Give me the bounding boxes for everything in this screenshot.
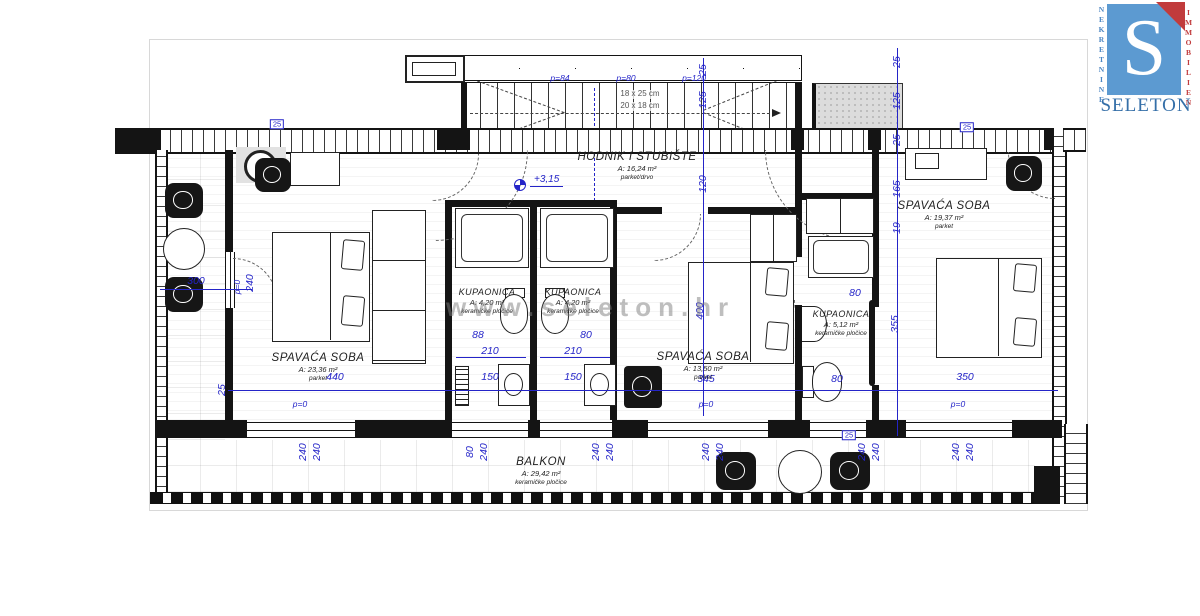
pillow <box>765 321 789 351</box>
door-leaf <box>869 300 875 386</box>
dimension-line <box>456 357 526 358</box>
cabinet <box>806 198 874 234</box>
room-floor: keramičke pločice <box>515 479 567 487</box>
stairs-walk-line <box>470 113 775 114</box>
room-label-bedroom-middle: SPAVAĆA SOBA A: 13,50 m² parket <box>657 350 750 382</box>
wall-bottom-pier <box>355 420 452 438</box>
desk-item <box>915 153 939 169</box>
logo-square: S <box>1107 4 1181 95</box>
seleton-logo: NEKRETNINE S IMMOBILIEN SELETON <box>1090 0 1200 130</box>
wall-bottom-pier <box>612 420 648 438</box>
balcony-door <box>648 422 768 438</box>
wall-right-stub-bottom <box>1064 424 1088 504</box>
room-label-balkon: BALKON A: 29,42 m² keramičke pločice <box>515 455 567 487</box>
balcony-door <box>247 422 355 438</box>
balcony-railing <box>150 492 1040 504</box>
room-floor: parket <box>657 374 750 382</box>
room-name: SPAVAĆA SOBA <box>898 199 991 213</box>
shower-tray <box>461 214 523 262</box>
washing-machine-icon <box>498 364 530 406</box>
bed-blanket-line <box>272 232 331 340</box>
dimension-line <box>228 390 1058 391</box>
watermark-text: www.seleton.hr <box>446 292 735 323</box>
room-name: HODNIK I STUBIŠTE <box>577 150 696 164</box>
railing-corner <box>1034 466 1060 504</box>
armchair-icon <box>830 452 870 490</box>
shower-tray <box>546 214 608 262</box>
room-name: SPAVAĆA SOBA <box>657 350 750 364</box>
pillow <box>1013 317 1037 347</box>
wall-stair-side <box>461 82 467 148</box>
bathroom-window <box>452 422 528 438</box>
room-area: A: 13,50 m² <box>657 364 750 373</box>
room-floor: parket <box>272 375 365 383</box>
bathroom-window <box>540 422 612 438</box>
room-label-bedroom-right: SPAVAĆA SOBA A: 19,37 m² parket <box>898 199 991 231</box>
balcony-tiles <box>164 440 1035 492</box>
shaft-hatched <box>812 83 903 132</box>
armchair-icon <box>165 183 203 218</box>
desk <box>290 152 340 186</box>
stairs-direction-arrow <box>772 109 781 117</box>
radiator-icon <box>455 366 469 406</box>
level-marker-icon <box>514 179 526 191</box>
room-area: A: 29,42 m² <box>515 469 567 478</box>
wall-bottom-pier <box>528 420 540 438</box>
room-name: SPAVAĆA SOBA <box>272 351 365 365</box>
room-label-bedroom-left: SPAVAĆA SOBA A: 23,36 m² parket <box>272 351 365 383</box>
toilet-icon <box>812 362 842 402</box>
room-name: KUPAONICA <box>813 309 870 320</box>
roof-ledge-inner <box>412 62 456 76</box>
wall-bedroom-left <box>225 150 233 252</box>
room-area: A: 23,36 m² <box>272 365 365 374</box>
room-area: A: 16,24 m² <box>577 164 696 173</box>
room-area: A: 19,37 m² <box>898 213 991 222</box>
pillow <box>1013 263 1037 293</box>
stairs-note-2: 20 x 18 cm <box>618 102 661 111</box>
armchair-icon <box>716 452 756 490</box>
chair-icon <box>1006 156 1042 191</box>
room-floor: keramičke pločice <box>813 330 870 338</box>
logo-side-text-right: IMMOBILIEN <box>1184 8 1193 98</box>
logo-letter: S <box>1107 4 1181 95</box>
stairs-note-1: 18 x 25 cm <box>618 90 661 99</box>
room-area: A: 5,12 m² <box>813 320 870 329</box>
stair-window-band <box>463 55 802 81</box>
round-table <box>778 450 822 494</box>
pillow <box>765 267 789 297</box>
floorplan-canvas: 18 x 25 cm 20 x 18 cm <box>0 0 1200 616</box>
dimension-line <box>160 289 252 290</box>
pillow <box>341 295 366 327</box>
logo-side-text-left: NEKRETNINE <box>1097 5 1106 95</box>
shower-tray <box>813 240 869 274</box>
armchair-icon <box>165 277 203 312</box>
wall-bedroom-middle-top <box>708 207 797 214</box>
wall-bottom-pier <box>768 420 810 438</box>
room-label-bathroom-3: KUPAONICA A: 5,12 m² keramičke pločice <box>813 309 870 338</box>
wall-pier <box>868 128 881 150</box>
logo-brand: SELETON <box>1100 95 1192 117</box>
level-marker-value: +3,15 <box>530 174 563 187</box>
round-table <box>163 228 205 270</box>
wall-interior <box>795 305 802 420</box>
balcony-door <box>906 422 1012 438</box>
wall-right-stub-top <box>1063 128 1086 152</box>
pillow <box>341 239 366 271</box>
dimension-line <box>540 357 610 358</box>
wardrobe <box>750 214 797 262</box>
room-name: BALKON <box>515 455 567 469</box>
wall-bottom-pier <box>866 420 906 438</box>
wall-bedroom-left <box>225 308 233 420</box>
bathroom-opening <box>810 422 866 438</box>
dimension-line <box>897 48 898 436</box>
room-floor: parket <box>898 223 991 231</box>
washing-machine-icon <box>584 364 616 406</box>
wall-bottom-pier <box>1012 420 1062 438</box>
room-floor: parket/drvo <box>577 174 696 182</box>
wall-bedroom-middle-top <box>617 207 662 214</box>
chair-icon <box>255 158 291 192</box>
bed-blanket-line <box>936 258 999 356</box>
room-label-hodnik: HODNIK I STUBIŠTE A: 16,24 m² parket/drv… <box>577 150 696 182</box>
wall-bottom-pier <box>155 420 247 438</box>
wardrobe <box>372 210 426 364</box>
